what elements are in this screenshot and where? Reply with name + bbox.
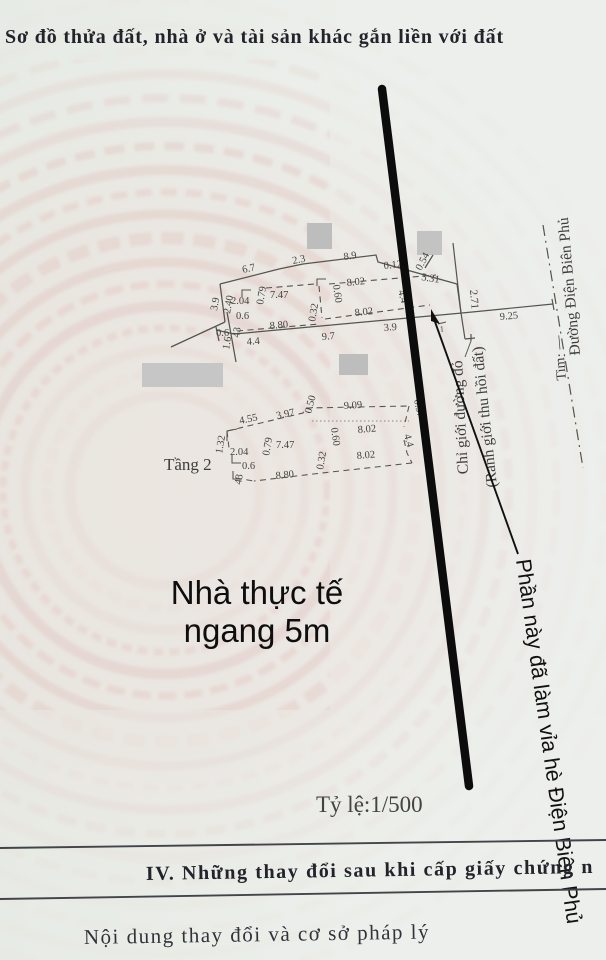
svg-text:8.9: 8.9	[343, 250, 358, 263]
svg-text:4.4: 4.4	[401, 433, 415, 449]
svg-text:ngang 5m: ngang 5m	[184, 612, 331, 649]
svg-text:7.47: 7.47	[276, 440, 294, 451]
svg-text:9.7: 9.7	[321, 331, 335, 343]
svg-text:43: 43	[231, 326, 244, 338]
svg-text:0.32: 0.32	[315, 451, 329, 471]
svg-text:0.50: 0.50	[303, 394, 318, 415]
svg-text:0.6: 0.6	[242, 461, 255, 472]
svg-text:8.02: 8.02	[357, 423, 376, 436]
svg-text:0.32: 0.32	[307, 303, 321, 323]
svg-text:8.80: 8.80	[269, 319, 288, 332]
svg-text:6.7: 6.7	[241, 262, 256, 276]
svg-text:0.79: 0.79	[255, 286, 269, 306]
svg-text:2.04: 2.04	[231, 296, 250, 307]
svg-text:2.04: 2.04	[230, 447, 249, 458]
svg-text:4.4: 4.4	[246, 336, 261, 348]
svg-text:Tỷ lệ:1/500: Tỷ lệ:1/500	[316, 792, 423, 817]
svg-text:8.02: 8.02	[346, 276, 365, 289]
svg-text:8.02: 8.02	[356, 449, 375, 462]
svg-text:Nội dung thay đổi và cơ sở phá: Nội dung thay đổi và cơ sở pháp lý	[84, 920, 431, 949]
svg-text:3.9: 3.9	[383, 322, 397, 334]
svg-text:9.25: 9.25	[499, 310, 518, 323]
svg-text:2.3: 2.3	[291, 254, 306, 267]
svg-text:8.02: 8.02	[354, 306, 373, 319]
svg-text:IV. Những thay đổi sau khi cấp: IV. Những thay đổi sau khi cấp giấy chứn…	[146, 856, 594, 885]
svg-text:1.32: 1.32	[214, 435, 228, 455]
svg-text:0.60: 0.60	[330, 284, 343, 304]
svg-text:7.47: 7.47	[270, 290, 288, 301]
svg-text:5.31: 5.31	[421, 272, 441, 286]
svg-text:Đường Điện Biên Phủ: Đường Điện Biên Phủ	[555, 216, 584, 356]
svg-text:9.09: 9.09	[343, 400, 362, 412]
svg-text:(Ranh giới thu hồi đất): (Ranh giới thu hồi đất)	[469, 346, 501, 489]
svg-text:3.9: 3.9	[209, 297, 222, 312]
svg-text:1: 1	[439, 324, 444, 334]
svg-text:0.79: 0.79	[261, 437, 275, 457]
svg-text:0.60: 0.60	[328, 427, 341, 447]
svg-text:4.55: 4.55	[238, 412, 258, 427]
svg-text:Tầng 2: Tầng 2	[164, 455, 212, 474]
svg-text:8.80: 8.80	[275, 469, 294, 482]
svg-text:0.6: 0.6	[236, 311, 249, 322]
svg-text:Nhà thực tế: Nhà thực tế	[171, 574, 344, 611]
svg-text:43: 43	[233, 473, 246, 485]
svg-text:2.71: 2.71	[467, 289, 481, 309]
svg-text:3.97: 3.97	[275, 407, 295, 422]
svg-text:Sơ đồ thửa đất, nhà ở và tài s: Sơ đồ thửa đất, nhà ở và tài sản khác gắ…	[5, 26, 504, 48]
svg-text:1.6: 1.6	[221, 336, 234, 351]
